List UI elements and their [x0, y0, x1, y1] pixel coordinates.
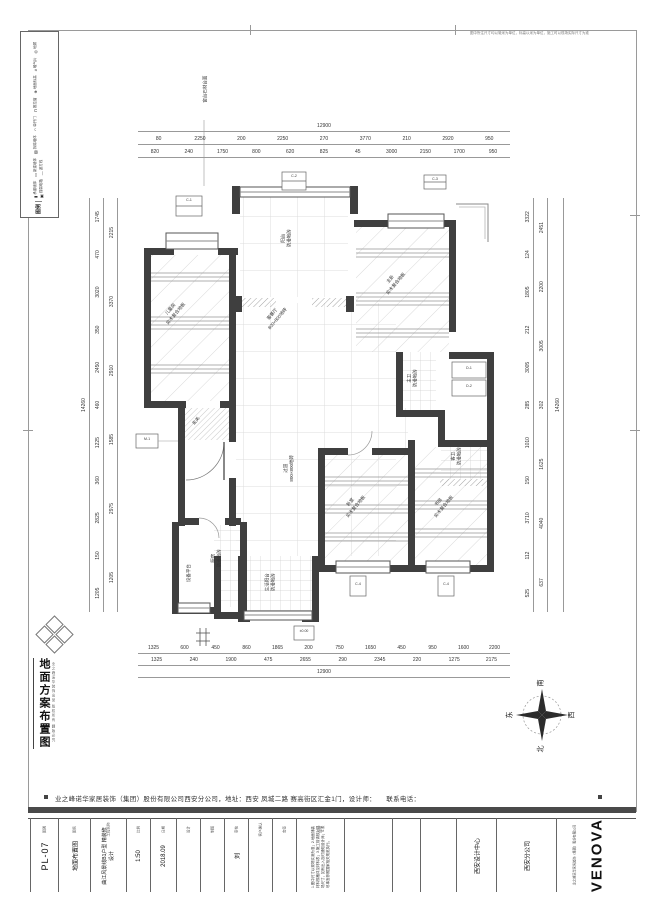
- dim-value: 3770: [345, 135, 386, 144]
- tb-cell-logo: 业之峰诺华家居装饰（集团）股份有限公司 VENOVA: [556, 818, 637, 892]
- tb-cell-notes: 说明1.图中尺寸以现场实测为准；2.地面铺装材料规格详见材料表；3.施工前请核对…: [296, 818, 344, 892]
- tb-cell-client: 客户确认: [248, 818, 272, 892]
- bullet-mark: [44, 795, 48, 799]
- dim-value: 240: [172, 148, 206, 157]
- dim-value: 200: [293, 644, 324, 653]
- dim-value: 3005: [538, 316, 547, 375]
- dim-value: 3000: [375, 148, 409, 157]
- dim-value: 45: [341, 148, 375, 157]
- dim-value: 210: [386, 135, 427, 144]
- dim-left-row2: 120529751585291033702215: [108, 198, 118, 612]
- tb-cell-sheetno: 图别PL-07: [30, 818, 58, 892]
- dim-value: 1325: [138, 656, 175, 665]
- dim-value: 2215: [108, 198, 117, 267]
- tag-d1: D-1: [452, 366, 486, 372]
- dim-value: 302: [538, 375, 547, 434]
- room-label-platform: 设备平台: [186, 564, 192, 582]
- room-label-hallway: 过道800×800地砖: [283, 455, 296, 482]
- tb-cell-checker: 审核刘: [224, 818, 248, 892]
- tag-c3: C-3: [424, 177, 446, 183]
- tb-cell-branch: 西安分公司: [496, 818, 556, 892]
- dim-value: 3370: [108, 267, 117, 336]
- dim-bottom-total: 12900: [138, 668, 510, 678]
- dim-top-row2: 820240175080062082545300021501700950: [138, 148, 510, 158]
- flower-logo-icon: [38, 618, 70, 650]
- dim-value: 860: [231, 644, 262, 653]
- tb-cell-scale: 比例1:50: [126, 818, 150, 892]
- dim-right-row2: 63740401625302300522002451: [538, 198, 548, 612]
- tb-cell-design-center: 西安设计中心: [456, 818, 496, 892]
- dim-value: 450: [386, 644, 417, 653]
- dim-value: 450: [200, 644, 231, 653]
- dim-top-row1: 802250200225027037702102920950: [138, 135, 510, 145]
- dim-left-total: 14260: [80, 198, 90, 612]
- dim-value: 475: [250, 656, 287, 665]
- room-label-bath-master: 主卫防滑地砖: [407, 369, 420, 387]
- dim-value: 2345: [361, 656, 398, 665]
- dim-value: 1205: [94, 574, 103, 612]
- compass-label-north: 北: [536, 746, 546, 753]
- logo-subtext: 业之峰诺华家居装饰（集团）股份有限公司: [572, 825, 577, 886]
- tb-cell-project: 工程名称曲江风景线B1户型 精装修设计: [90, 818, 126, 892]
- dim-value: 1275: [436, 656, 473, 665]
- dim-right-row1: 52511237101501010285300521218051243322: [524, 198, 534, 612]
- dim-value: 1010: [524, 424, 533, 462]
- tb-cell-drafter: 制图: [200, 818, 224, 892]
- dim-value: 240: [175, 656, 212, 665]
- company-line: 业之峰诺华家居装饰（集团）股份有限公司西安分公司，地址：西安 凤城二路 赛高街区…: [55, 793, 595, 803]
- dim-value: 2250: [179, 135, 220, 144]
- tag-c2: C-2: [282, 174, 306, 180]
- tb-cell-empty: [420, 818, 456, 892]
- dim-value: 525: [524, 574, 533, 612]
- dim-value: 1805: [524, 273, 533, 311]
- dim-value: 112: [524, 537, 533, 575]
- dim-value: 150: [524, 461, 533, 499]
- dim-value: 800: [239, 148, 273, 157]
- dim-value: 212: [524, 311, 533, 349]
- room-label-kitchen: 厨房防滑地砖: [211, 549, 224, 567]
- stamp-side-note: 业之峰诺华装饰出品 版权所有 翻版必究: [52, 662, 57, 742]
- dim-value: 360: [94, 461, 103, 499]
- room-label-balcony-top: 阳台防滑地砖: [281, 229, 294, 247]
- dim-value: 2250: [262, 135, 303, 144]
- dim-value: 1750: [206, 148, 240, 157]
- dim-value: 1900: [212, 656, 249, 665]
- compass-label-east: 东: [505, 712, 515, 719]
- stamp-title: 地面方案布置图: [33, 658, 52, 749]
- tag-m1: M-1: [136, 437, 158, 443]
- dim-value: 820: [138, 148, 172, 157]
- dim-value: 750: [324, 644, 355, 653]
- dim-value: 1205: [108, 543, 117, 612]
- dim-value: 4040: [538, 494, 547, 553]
- dim-bottom-row2: 132524019004752655290234522012752175: [138, 656, 510, 666]
- dim-value: 3020: [94, 273, 103, 311]
- dim-value: 3322: [524, 198, 533, 236]
- dim-value: 1600: [448, 644, 479, 653]
- dim-value: 150: [94, 537, 103, 575]
- compass-label-south: 南: [536, 680, 546, 687]
- dim-value: 470: [94, 236, 103, 274]
- room-label-balcony-bottom: 生活阳台防滑地砖: [265, 573, 278, 591]
- dim-value: 124: [524, 236, 533, 274]
- dim-value: 270: [303, 135, 344, 144]
- dim-value: 2825: [94, 499, 103, 537]
- dim-value: 2200: [479, 644, 510, 653]
- dim-value: 1585: [108, 405, 117, 474]
- room-label-bath-guest: 客卫防滑地砖: [451, 447, 464, 465]
- dim-value: 3710: [524, 499, 533, 537]
- dim-value: 1325: [138, 644, 169, 653]
- dim-value: 1650: [355, 644, 386, 653]
- dim-left-row1: 120515028253601225460245035030204701745: [94, 198, 104, 612]
- dim-bottom-row1: 1325600450860186520075016504509501600220…: [138, 644, 510, 654]
- dim-value: 2200: [538, 257, 547, 316]
- dim-value: 1225: [94, 424, 103, 462]
- tag-c4a: C-4: [350, 582, 366, 588]
- dim-value: 620: [273, 148, 307, 157]
- dim-value: 1745: [94, 198, 103, 236]
- dim-value: 285: [524, 386, 533, 424]
- tb-cell-sheetname: 图名地面布置图: [58, 818, 90, 892]
- dim-value: 1865: [262, 644, 293, 653]
- annotation-window-sill: 窗台石材台面: [202, 76, 208, 103]
- compass-label-west: 西: [567, 712, 577, 719]
- tag-d2: D-2: [452, 384, 486, 390]
- tb-cell-date: 日期2018.09: [150, 818, 176, 892]
- tag-level: ±0.00: [294, 629, 314, 635]
- dim-value: 460: [94, 386, 103, 424]
- dim-value: 2150: [409, 148, 443, 157]
- dim-value: 950: [417, 644, 448, 653]
- dim-value: 2175: [473, 656, 510, 665]
- tb-cell-empty: [344, 818, 392, 892]
- dim-value: 3005: [524, 349, 533, 387]
- dim-value: 2975: [108, 474, 117, 543]
- dim-value: 2450: [94, 349, 103, 387]
- dim-value: 200: [221, 135, 262, 144]
- dim-value: 350: [94, 311, 103, 349]
- tag-c1: C-1: [176, 198, 202, 204]
- dim-value: 2920: [427, 135, 468, 144]
- dim-value: 950: [476, 148, 510, 157]
- tb-cell-designer: 设计: [176, 818, 200, 892]
- dim-value: 220: [398, 656, 435, 665]
- dim-value: 290: [324, 656, 361, 665]
- titleblock-bar: [28, 807, 636, 813]
- dim-value: 600: [169, 644, 200, 653]
- bullet-mark: [598, 795, 602, 799]
- dim-top-total: 12900: [138, 122, 510, 132]
- dim-value: 637: [538, 553, 547, 612]
- dim-value: 1700: [442, 148, 476, 157]
- dim-value: 80: [138, 135, 179, 144]
- tb-cell-countersign: 会签: [272, 818, 296, 892]
- dim-right-total: 14260: [554, 198, 564, 612]
- dim-value: 2910: [108, 336, 117, 405]
- dim-value: 2451: [538, 198, 547, 257]
- tag-c4b: C-4: [438, 582, 454, 588]
- dim-value: 1625: [538, 435, 547, 494]
- dim-value: 825: [307, 148, 341, 157]
- venova-logo: VENOVA: [589, 818, 606, 892]
- dim-value: 950: [469, 135, 510, 144]
- tb-cell-empty: [392, 818, 420, 892]
- dim-value: 2655: [287, 656, 324, 665]
- drawing-sheet: 图中所注尺寸均以毫米为单位，标高以米为单位，施工时以现场实际尺寸为准 图例 ▮承…: [0, 0, 645, 900]
